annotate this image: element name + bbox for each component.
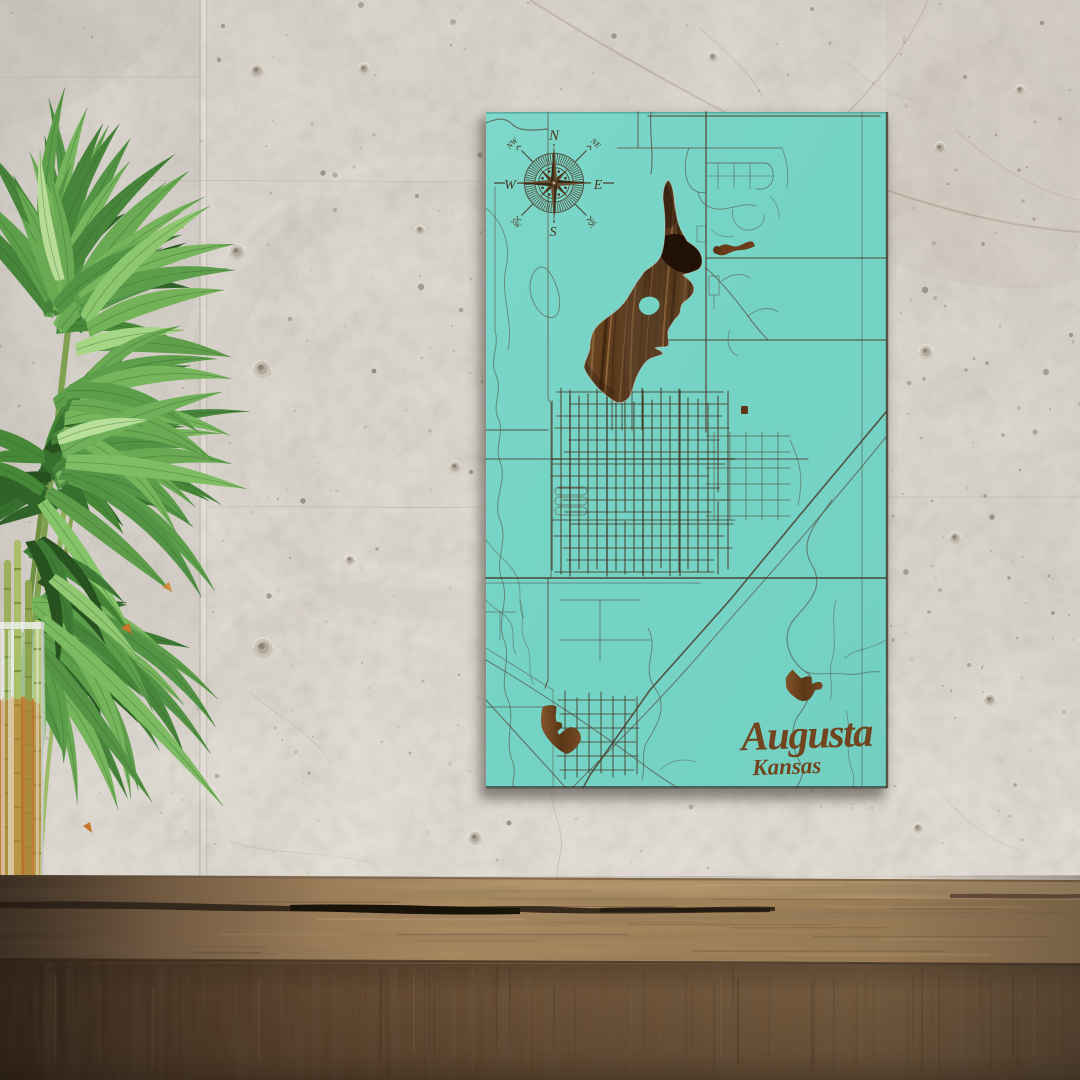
svg-text:W: W xyxy=(504,178,517,193)
svg-text:S: S xyxy=(550,225,557,240)
svg-text:Kansas: Kansas xyxy=(751,753,822,780)
svg-text:E: E xyxy=(593,178,603,193)
svg-text:Augusta: Augusta xyxy=(737,709,873,760)
svg-text:N: N xyxy=(548,128,560,144)
